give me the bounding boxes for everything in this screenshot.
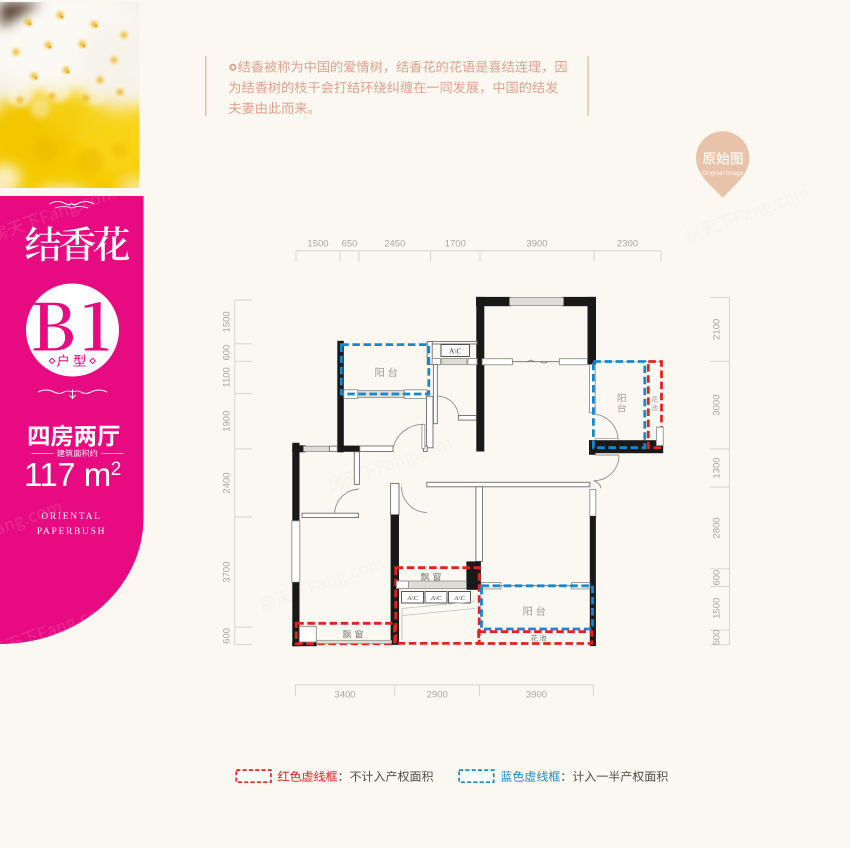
svg-text:500: 500 [712,630,723,646]
svg-text:1500: 1500 [307,239,328,250]
svg-text:2450: 2450 [384,239,405,250]
svg-text:2300: 2300 [617,239,638,250]
svg-text:2800: 2800 [712,517,723,538]
svg-text:1100: 1100 [222,367,233,387]
svg-text:PAPERBUSH: PAPERBUSH [37,527,106,537]
svg-text:1300: 1300 [712,457,723,478]
svg-text:2900: 2900 [427,690,448,701]
svg-text:3000: 3000 [712,395,723,416]
svg-text:A\C: A\C [407,595,418,602]
svg-text:A\C: A\C [454,595,465,602]
svg-text:1500: 1500 [222,311,233,332]
svg-text:117 m2: 117 m2 [24,456,121,493]
svg-text:1900: 1900 [222,411,233,432]
svg-text:1500: 1500 [712,598,723,619]
svg-text:600: 600 [222,345,233,361]
svg-text:2100: 2100 [712,319,723,340]
svg-text:A\C: A\C [449,346,462,355]
svg-text:2400: 2400 [222,472,233,493]
svg-text:650: 650 [342,239,358,250]
svg-text:Original Image: Original Image [702,170,743,177]
svg-text:3400: 3400 [334,690,355,701]
svg-text:3900: 3900 [526,690,547,701]
svg-text:1700: 1700 [445,239,466,250]
svg-text:ORIENTAL: ORIENTAL [41,512,101,522]
svg-text:3900: 3900 [526,239,547,250]
svg-text:600: 600 [712,570,723,586]
svg-text:A\C: A\C [431,595,442,602]
svg-text:600: 600 [222,628,233,644]
svg-text:3700: 3700 [222,562,233,583]
